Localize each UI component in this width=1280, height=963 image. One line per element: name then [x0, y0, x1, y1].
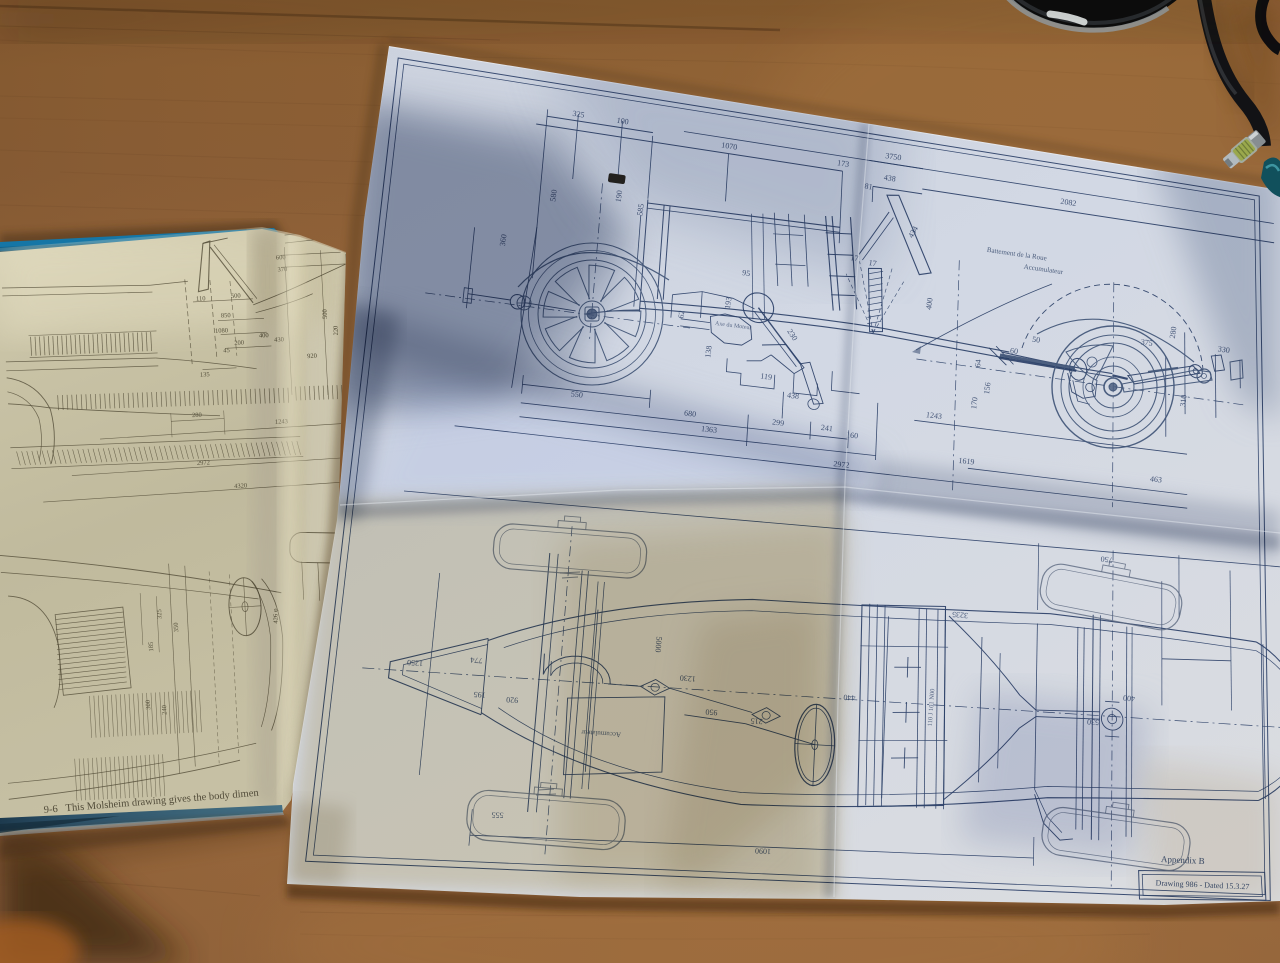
- svg-text:463: 463: [1150, 474, 1163, 484]
- svg-text:64: 64: [973, 359, 983, 368]
- svg-text:750: 750: [1100, 554, 1113, 564]
- svg-text:280: 280: [192, 412, 202, 420]
- svg-text:240: 240: [161, 705, 169, 715]
- svg-text:135: 135: [200, 371, 210, 379]
- svg-text:440: 440: [843, 693, 856, 703]
- svg-text:2972: 2972: [197, 459, 210, 467]
- svg-text:50: 50: [1032, 335, 1041, 345]
- svg-text:95: 95: [742, 268, 751, 278]
- svg-text:1619: 1619: [958, 456, 975, 467]
- svg-text:400: 400: [924, 297, 935, 310]
- svg-text:850: 850: [221, 312, 231, 320]
- svg-text:185: 185: [148, 642, 156, 652]
- svg-text:156: 156: [982, 382, 992, 395]
- svg-text:350: 350: [173, 622, 181, 632]
- svg-text:170: 170: [969, 397, 979, 410]
- svg-text:280: 280: [1168, 326, 1179, 339]
- svg-text:200: 200: [234, 339, 244, 347]
- svg-text:299: 299: [772, 417, 785, 427]
- svg-text:138: 138: [703, 345, 713, 358]
- svg-text:4320: 4320: [234, 482, 247, 490]
- svg-text:1080: 1080: [215, 327, 228, 335]
- svg-text:300: 300: [145, 700, 153, 710]
- svg-text:500: 500: [231, 292, 241, 300]
- svg-text:3235: 3235: [952, 610, 969, 620]
- svg-text:241: 241: [820, 423, 833, 433]
- svg-text:1243: 1243: [926, 410, 943, 421]
- svg-text:119: 119: [760, 371, 773, 381]
- svg-text:400: 400: [1123, 693, 1136, 703]
